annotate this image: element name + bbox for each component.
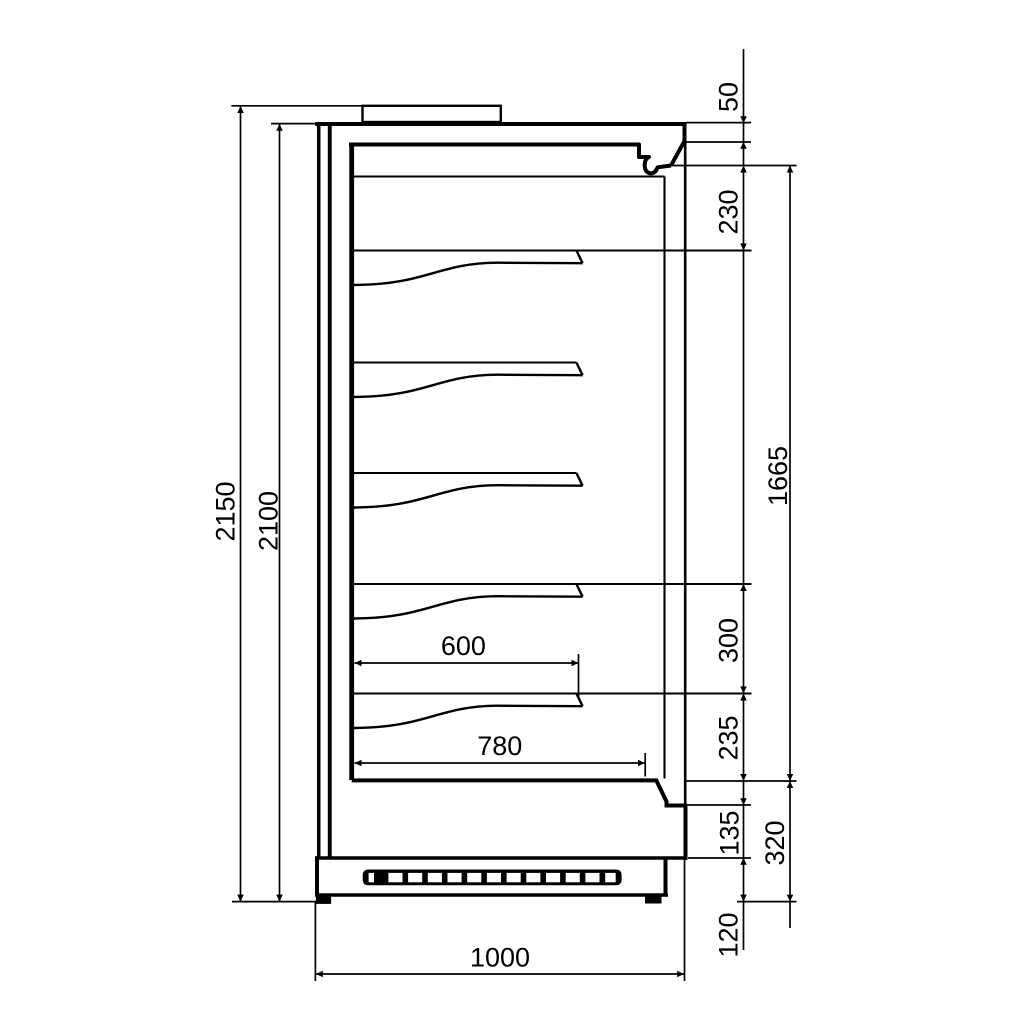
svg-text:2150: 2150 (211, 481, 241, 541)
svg-text:780: 780 (477, 731, 522, 761)
svg-text:120: 120 (714, 912, 744, 957)
svg-text:235: 235 (714, 715, 744, 760)
svg-text:320: 320 (760, 820, 790, 865)
svg-text:135: 135 (715, 810, 745, 855)
svg-text:230: 230 (714, 189, 744, 234)
svg-text:50: 50 (714, 82, 744, 112)
svg-text:600: 600 (441, 631, 486, 661)
svg-text:300: 300 (714, 618, 744, 663)
svg-text:1000: 1000 (470, 943, 530, 973)
svg-text:1665: 1665 (763, 446, 793, 506)
svg-text:2100: 2100 (254, 491, 284, 551)
